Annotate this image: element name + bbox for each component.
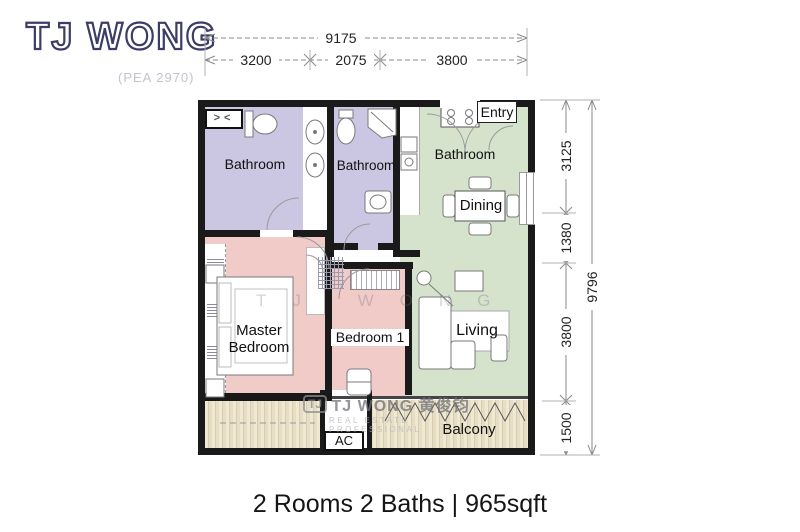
dim-right-seg4: 1500 <box>558 405 574 451</box>
watermark: TJ TJ WONG 黄俊钧 REAL ESTATE PROFESSIONAL <box>303 392 503 434</box>
vanity-counter <box>303 107 327 230</box>
dim-right-overall: 9796 <box>584 264 600 310</box>
wardrobe-hatch <box>207 257 224 272</box>
dim-right-seg2: 1380 <box>558 215 574 261</box>
dim-top-seg1: 3200 <box>233 52 279 68</box>
dim-right-seg1: 3125 <box>558 133 574 179</box>
wardrobe <box>350 270 400 290</box>
wall <box>334 243 358 250</box>
shower-symbol: >< <box>205 109 243 129</box>
watermark-ghost-letters: TJ WONG <box>256 291 516 311</box>
shoe-cabinet <box>318 257 344 289</box>
label-bedroom1: Bedroom 1 <box>331 329 409 346</box>
label-bathroom-master: Bathroom <box>210 156 300 173</box>
wall <box>378 243 400 250</box>
wardrobe-hatch <box>207 302 224 317</box>
label-living: Living <box>445 322 509 339</box>
label-bathroom-middle: Bathroom <box>330 157 402 174</box>
label-bathroom-kitchen: Bathroom <box>419 146 511 163</box>
floorplan-page: TJ WONG (PEA 2970) 9175 3200 2075 <box>0 0 800 532</box>
dim-top-seg2: 2075 <box>328 52 374 68</box>
watermark-tagline: REAL ESTATE PROFESSIONAL <box>329 416 503 434</box>
wall <box>393 107 400 250</box>
watermark-badge: TJ <box>303 395 327 413</box>
dim-top-seg3: 3800 <box>429 52 475 68</box>
watermark-name: TJ WONG 黄俊钧 <box>331 398 469 415</box>
dim-right-seg3: 3800 <box>558 309 574 355</box>
wall-gap <box>440 100 480 108</box>
wall <box>332 262 413 269</box>
wall <box>393 250 420 257</box>
label-entry: Entry <box>477 101 517 123</box>
kitchen-counter <box>400 107 420 215</box>
window <box>519 172 535 225</box>
wall <box>205 230 260 237</box>
wall <box>327 107 334 257</box>
label-ac: AC <box>324 431 364 451</box>
dim-top-overall: 9175 <box>318 30 364 46</box>
room-bathroom-middle <box>334 107 400 250</box>
label-dining: Dining <box>456 197 506 214</box>
wall <box>293 230 327 237</box>
label-master-bedroom: Master Bedroom <box>213 322 305 356</box>
